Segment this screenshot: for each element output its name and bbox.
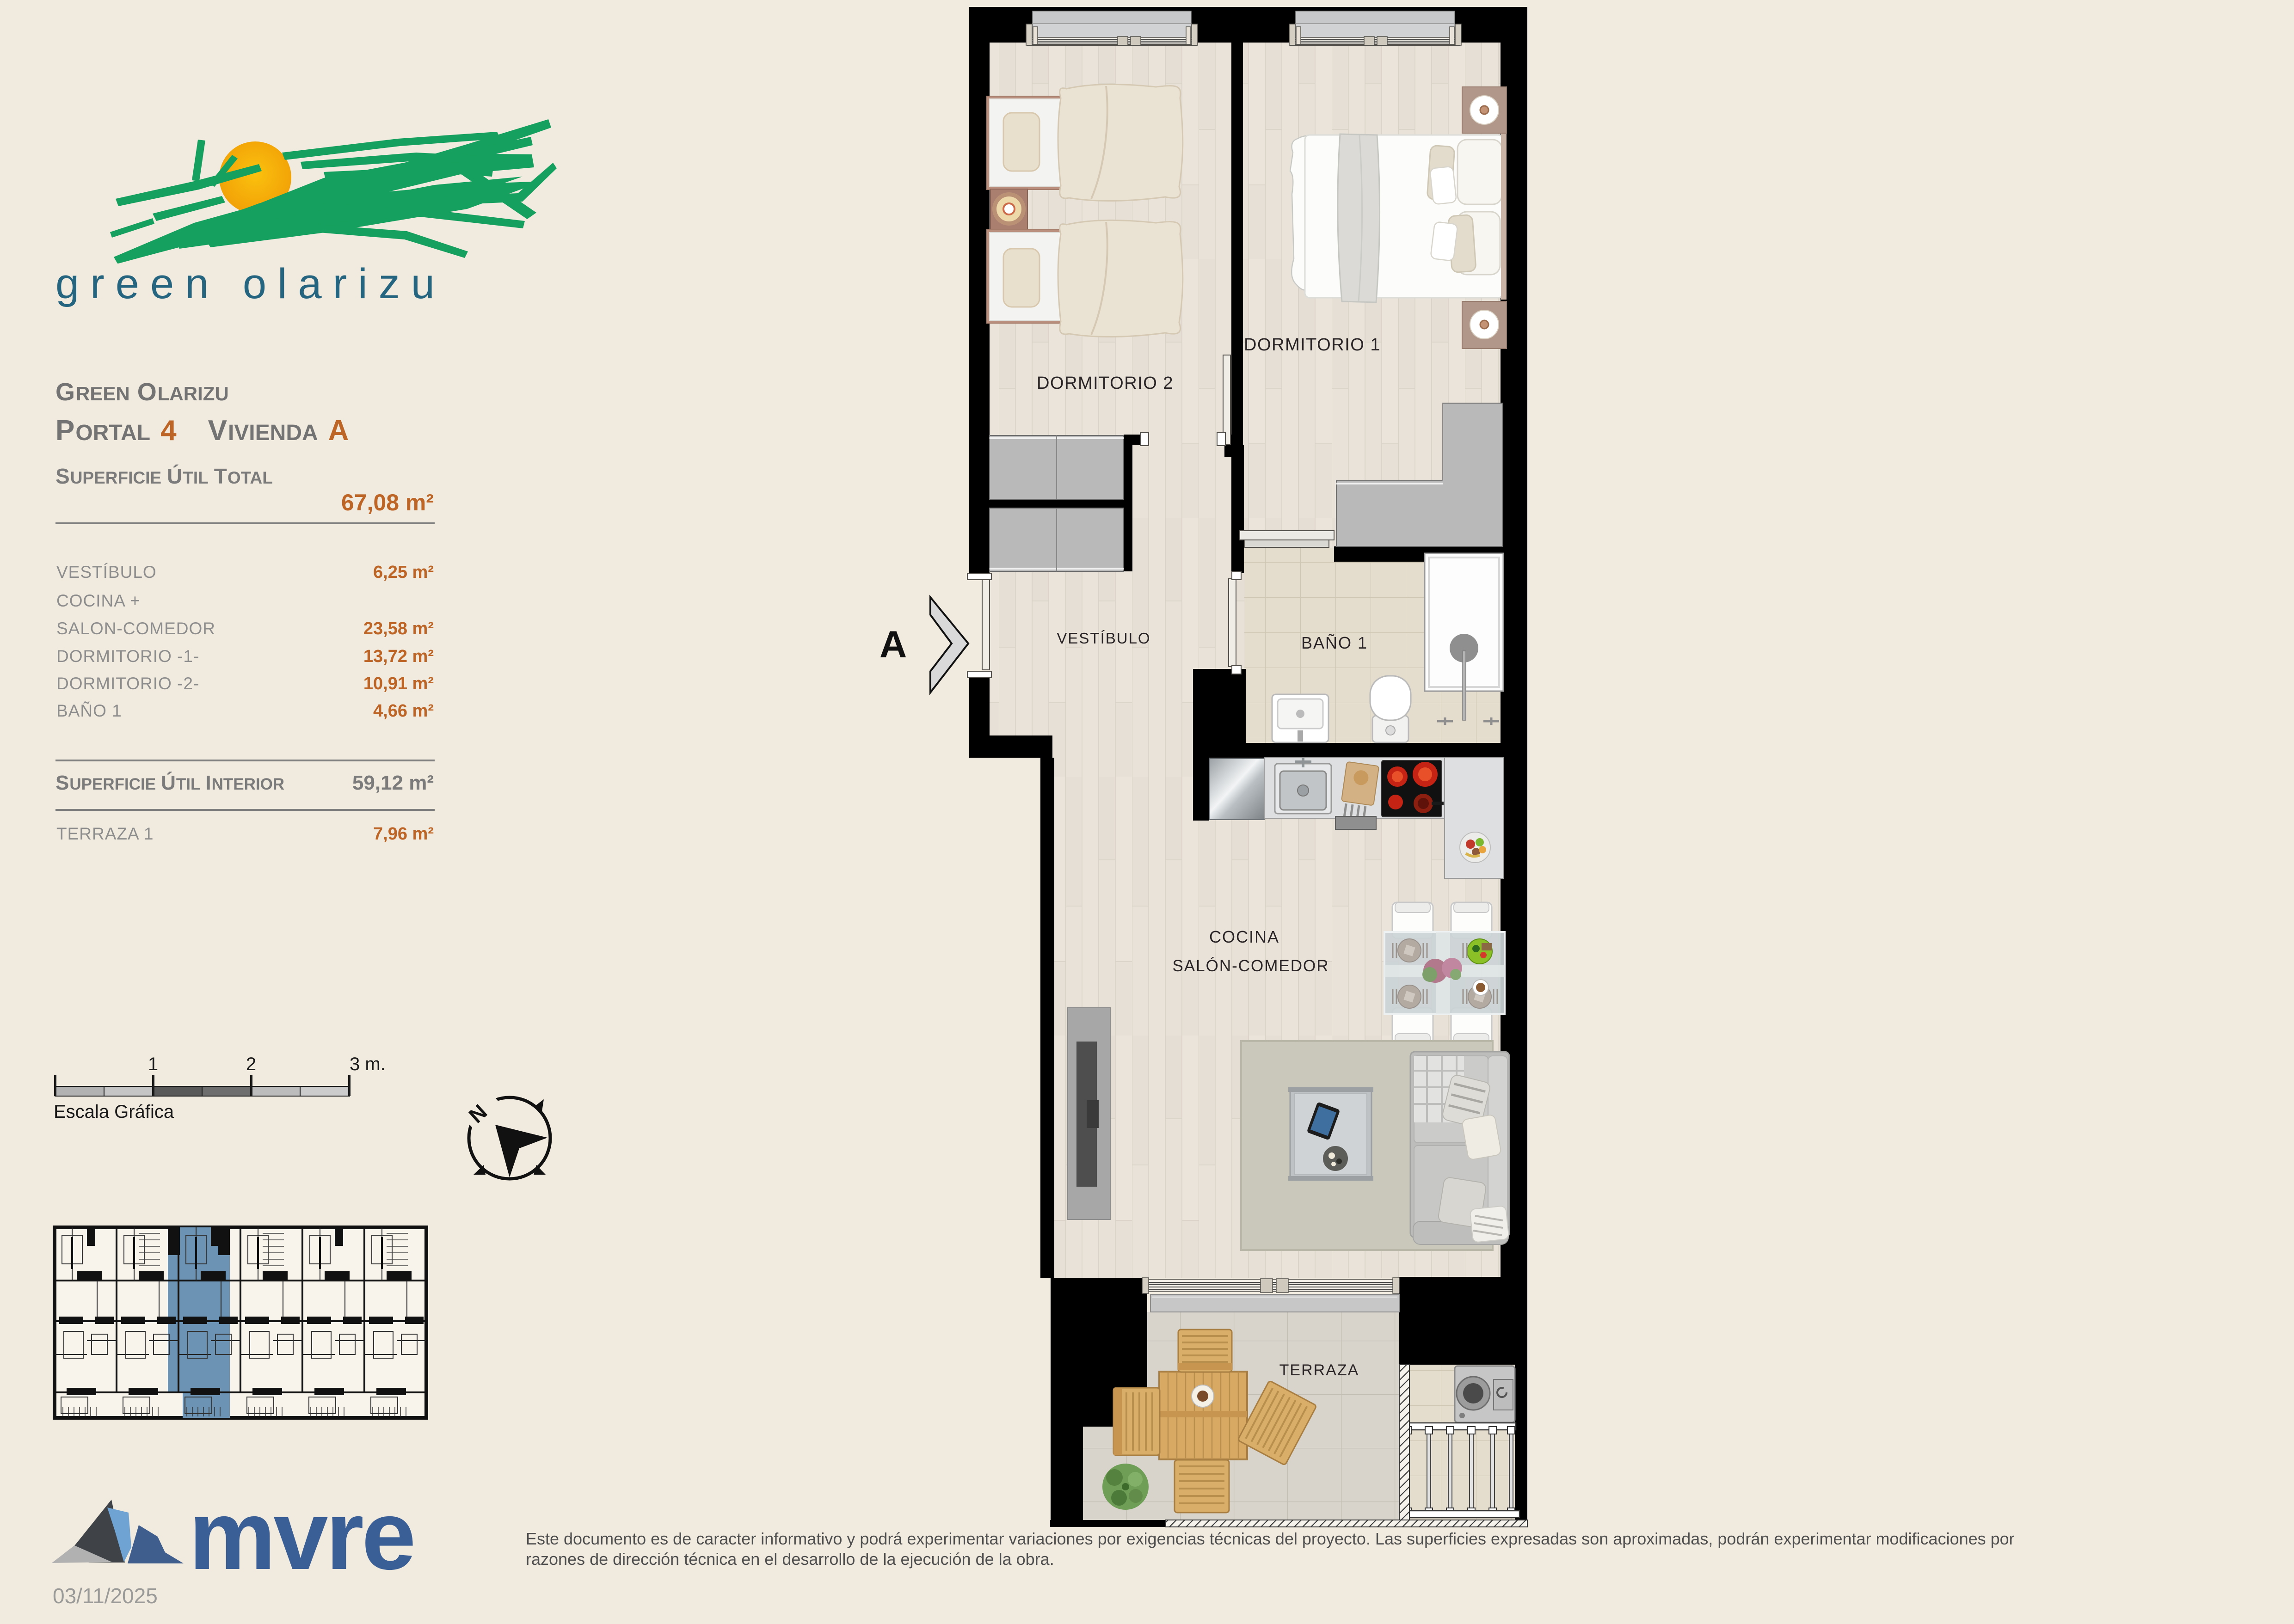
svg-text:VESTÍBULO: VESTÍBULO (56, 563, 157, 582)
svg-text:Este documento es de caracter: Este documento es de caracter informativ… (526, 1529, 2015, 1548)
svg-text:mvre: mvre (189, 1480, 414, 1590)
svg-text:TERRAZA: TERRAZA (1279, 1361, 1359, 1379)
svg-text:03/11/2025: 03/11/2025 (53, 1584, 158, 1608)
svg-text:13,72 m²: 13,72 m² (363, 647, 434, 666)
svg-text:BAÑO 1: BAÑO 1 (1301, 633, 1368, 652)
svg-text:2: 2 (246, 1054, 256, 1074)
svg-text:COCINA +: COCINA + (56, 591, 141, 610)
svg-text:DORMITORIO 2: DORMITORIO 2 (1037, 374, 1174, 393)
svg-text:green olarizu: green olarizu (55, 260, 446, 307)
svg-text:4,66 m²: 4,66 m² (373, 701, 434, 721)
svg-text:SALON-COMEDOR: SALON-COMEDOR (56, 619, 215, 638)
svg-text:67,08 m²: 67,08 m² (341, 490, 434, 515)
svg-text:10,91 m²: 10,91 m² (363, 674, 434, 693)
svg-text:59,12 m²: 59,12 m² (352, 772, 434, 794)
svg-text:6,25 m²: 6,25 m² (373, 563, 434, 582)
svg-text:BAÑO 1: BAÑO 1 (56, 701, 122, 720)
svg-text:3 m.: 3 m. (350, 1054, 386, 1074)
svg-text:TERRAZA 1: TERRAZA 1 (56, 824, 154, 843)
svg-text:DORMITORIO -2-: DORMITORIO -2- (56, 674, 199, 693)
svg-text:A: A (879, 624, 907, 666)
svg-text:VESTÍBULO: VESTÍBULO (1057, 630, 1150, 647)
svg-text:23,58 m²: 23,58 m² (363, 619, 434, 638)
svg-text:DORMITORIO 1: DORMITORIO 1 (1244, 335, 1381, 355)
svg-text:7,96 m²: 7,96 m² (373, 824, 434, 844)
svg-text:Escala Gráfica: Escala Gráfica (54, 1102, 174, 1122)
svg-text:1: 1 (148, 1054, 158, 1074)
svg-text:COCINA: COCINA (1209, 927, 1279, 946)
svg-text:SALÓN-COMEDOR: SALÓN-COMEDOR (1172, 957, 1329, 975)
svg-text:razones de dirección técnica e: razones de dirección técnica en el desar… (526, 1550, 1054, 1569)
svg-text:DORMITORIO -1-: DORMITORIO -1- (56, 647, 199, 666)
